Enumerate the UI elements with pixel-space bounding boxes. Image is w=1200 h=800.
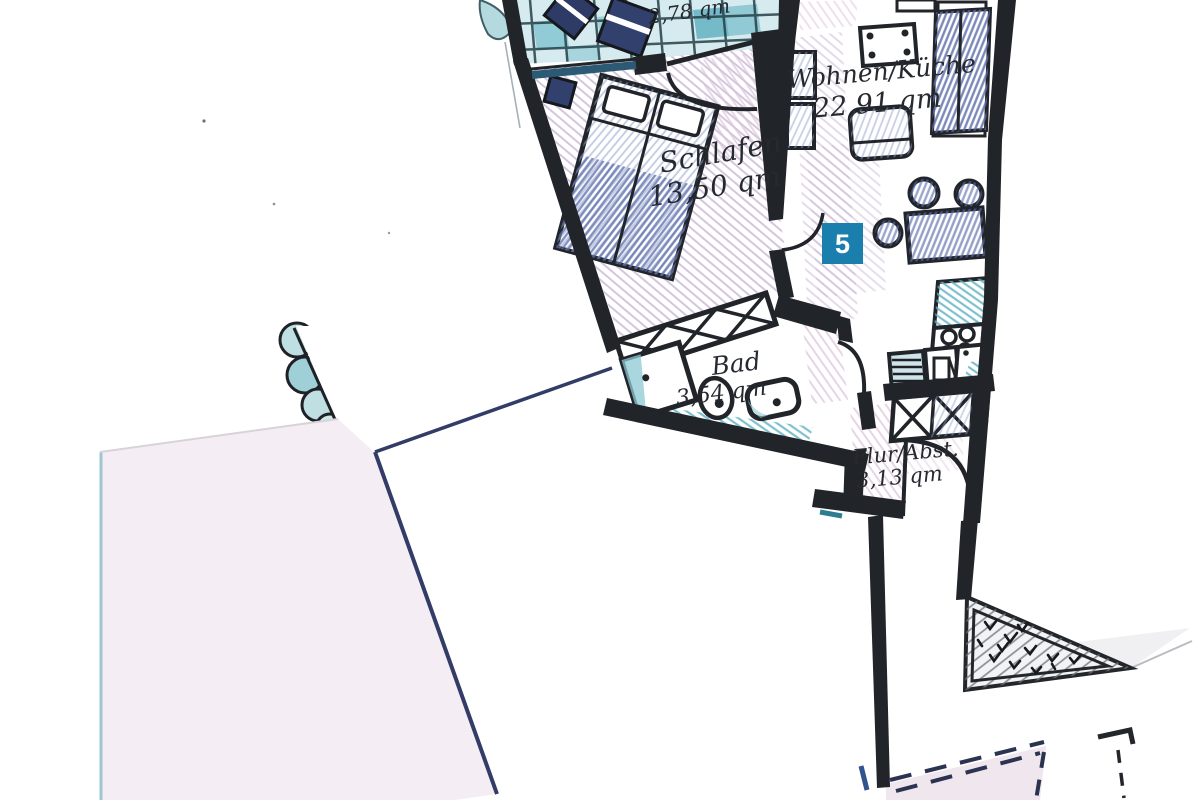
speck xyxy=(273,203,276,206)
floor-plan-canvas: 2,78 qm Schlafen 13,50 qm Wohnen/Küche 2… xyxy=(0,0,1200,800)
burner xyxy=(942,330,956,344)
oven-door xyxy=(934,358,949,380)
kitchen-counter-shading xyxy=(934,278,988,328)
chair-dot xyxy=(902,30,909,37)
speck xyxy=(388,232,390,234)
dining-chair-shading xyxy=(910,179,938,207)
badge-number: 5 xyxy=(835,229,850,259)
nightstand-top xyxy=(544,76,576,108)
dining-chair-shading xyxy=(875,220,901,246)
living-floor xyxy=(798,0,858,30)
small-table xyxy=(897,0,935,11)
hall-wardrobe-shading xyxy=(931,391,974,438)
speck xyxy=(202,119,205,122)
dining-chair-shading xyxy=(956,181,982,207)
living-floor xyxy=(806,140,886,298)
apartment-number-badge: 5 xyxy=(822,223,863,264)
bathroom-name-label: Bad xyxy=(709,346,762,381)
chair-dot xyxy=(867,33,874,40)
nightstand xyxy=(544,76,576,108)
scanned-floor-plan-page: 2,78 qm Schlafen 13,50 qm Wohnen/Küche 2… xyxy=(0,0,1200,800)
faucet-dot xyxy=(963,350,969,356)
sideboard-shading xyxy=(787,104,814,148)
dining-table-shading xyxy=(906,208,986,262)
burner xyxy=(960,327,974,341)
